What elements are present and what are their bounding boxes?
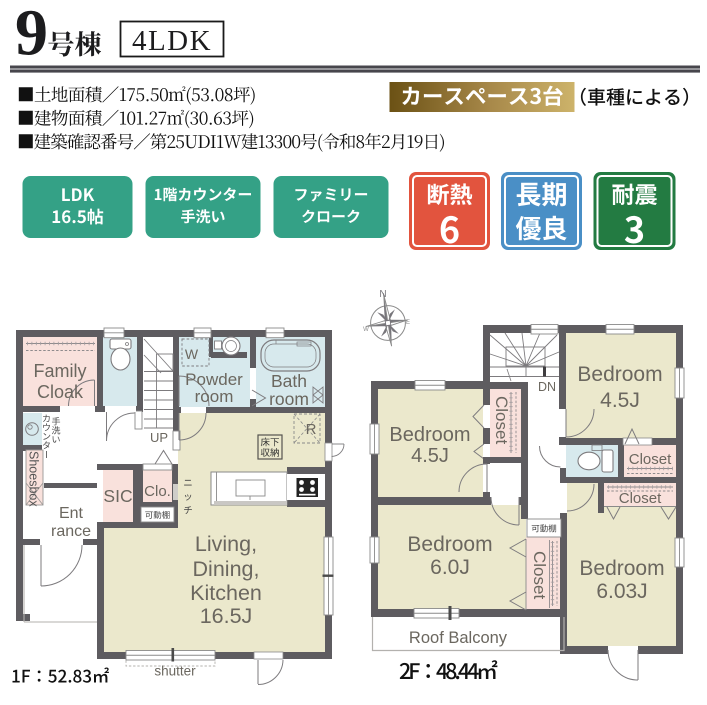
svg-text:shutter: shutter (154, 664, 196, 679)
svg-text:Closet: Closet (619, 490, 662, 507)
svg-text:Bedroom: Bedroom (579, 557, 664, 580)
svg-text:Clo.: Clo. (144, 483, 171, 500)
svg-text:16.5J: 16.5J (200, 604, 253, 628)
svg-text:SIC: SIC (103, 486, 132, 506)
svg-text:4LDK: 4LDK (132, 25, 212, 57)
svg-text:W: W (185, 346, 199, 362)
svg-text:rance: rance (51, 523, 91, 540)
svg-text:Bedroom: Bedroom (577, 363, 662, 386)
svg-text:Kitchen: Kitchen (190, 581, 262, 605)
svg-text:Shoesbox: Shoesbox (27, 451, 41, 507)
svg-text:Bedroom: Bedroom (407, 533, 492, 556)
svg-text:Ent: Ent (59, 505, 84, 522)
svg-text:6.0J: 6.0J (430, 556, 470, 579)
svg-text:N: N (379, 289, 386, 300)
svg-text:Family: Family (34, 361, 87, 381)
svg-text:room: room (195, 387, 234, 406)
svg-text:Closet: Closet (629, 451, 672, 468)
svg-text:Dining,: Dining, (193, 557, 260, 581)
svg-text:Closet: Closet (530, 551, 549, 599)
svg-text:Living,: Living, (195, 532, 257, 556)
svg-text:room: room (269, 389, 309, 409)
svg-text:4.5J: 4.5J (411, 445, 449, 467)
svg-text:9: 9 (15, 0, 48, 70)
svg-text:Bedroom: Bedroom (389, 424, 470, 446)
svg-text:R: R (306, 421, 317, 438)
svg-text:DN: DN (538, 380, 556, 394)
svg-text:E: E (406, 320, 410, 326)
svg-text:W: W (363, 327, 369, 333)
svg-text:4.5J: 4.5J (600, 389, 640, 412)
svg-text:Cloak: Cloak (37, 382, 84, 402)
svg-text:Bath: Bath (271, 371, 307, 391)
svg-text:6.03J: 6.03J (596, 580, 647, 603)
svg-text:Roof Balcony: Roof Balcony (409, 629, 508, 647)
svg-text:UP: UP (150, 430, 168, 445)
svg-text:Closet: Closet (492, 396, 511, 444)
